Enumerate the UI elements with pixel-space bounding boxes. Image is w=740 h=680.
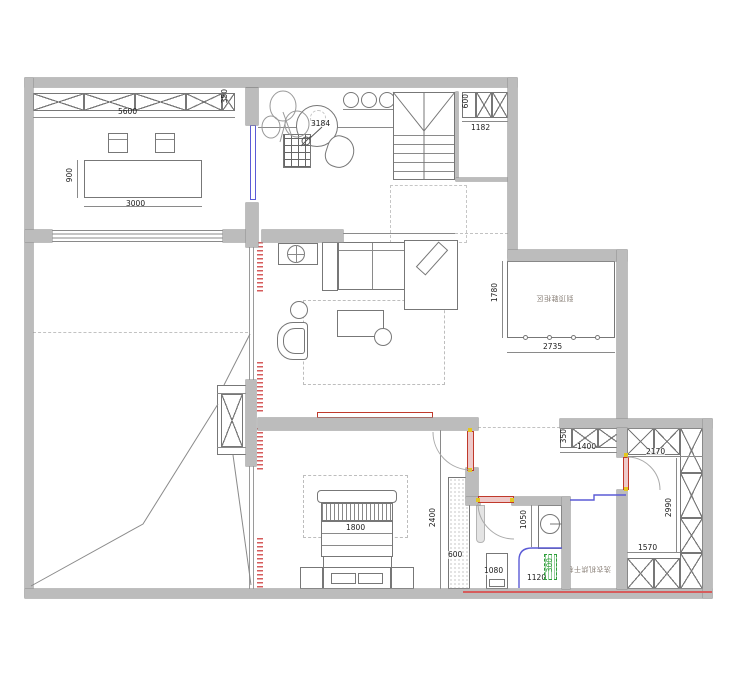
nightstand (300, 567, 323, 589)
wall (560, 419, 712, 428)
dim-line (627, 552, 680, 553)
bed-headboard (317, 490, 397, 503)
dining-chair (108, 133, 128, 153)
dim-line (77, 160, 78, 198)
cabinet-marker (595, 335, 600, 340)
closet-cabinet-cell (680, 553, 703, 589)
stair-shaft-wall (456, 92, 458, 180)
door-hinge (476, 498, 480, 502)
corridor-boundary-dashed-line (478, 427, 560, 428)
bed-line (322, 533, 392, 534)
stair-tread (394, 153, 454, 154)
dim-closet-bottom-length: 1570 (638, 544, 657, 552)
attic-boundary-dashed-line (33, 332, 248, 333)
shelf-grid (283, 134, 311, 168)
new-wall-hatch (257, 538, 263, 589)
sofa-armrest (322, 242, 338, 291)
dim-closet-side-length: 2990 (665, 498, 673, 517)
door-hinge (468, 428, 472, 432)
tall-cabinet-cell (186, 93, 222, 111)
dim-line (560, 452, 625, 453)
plant-cross-line (296, 245, 297, 263)
wall (25, 78, 517, 87)
bedroom-door-leaf (467, 431, 474, 471)
bar-stool (343, 92, 359, 108)
dim-shaft-cabinet-depth: 600 (462, 94, 470, 108)
wall (246, 203, 258, 247)
chair-back-line (109, 139, 127, 140)
dim-top-cabinet-depth: 350 (221, 89, 229, 103)
closet-cabinet-cell (680, 518, 703, 553)
wall (262, 230, 343, 242)
attic-slope-line (31, 404, 218, 586)
stair-tread (394, 162, 454, 163)
stair-landing-dashed-zone (390, 185, 467, 243)
bed-line (322, 545, 392, 546)
wall (562, 497, 570, 589)
wall (508, 78, 517, 258)
dim-top-cabinet-length: 5600 (118, 108, 137, 116)
dim-wardrobe-width: 600 (448, 551, 462, 559)
new-wall-hatch (257, 428, 263, 472)
dining-table (84, 160, 202, 198)
flue-box-line (217, 447, 247, 448)
wall (258, 418, 478, 430)
dim-toilet-zone-width: 1080 (484, 567, 503, 575)
coffee-side-table (374, 328, 392, 346)
bed-pillow-band (321, 503, 393, 521)
dim-line (627, 456, 703, 457)
door-hinge (510, 498, 514, 502)
dim-dining-table-depth: 900 (66, 168, 74, 182)
new-wall-hatch (257, 362, 263, 412)
dim-closet-strip-depth: 350 (560, 429, 568, 443)
nightstand (391, 567, 414, 589)
bench-cushion (331, 573, 356, 584)
living-zone-line (343, 233, 455, 234)
stairs (393, 92, 455, 180)
wall (703, 419, 712, 598)
window (52, 230, 223, 242)
cabinet-marker (547, 335, 552, 340)
door-hinge (468, 468, 472, 472)
floor-plan: 5600 350 900 3000 3184 600 1182 到顶鞋柜区 17… (0, 0, 740, 680)
tall-cabinet-cell (33, 93, 84, 111)
radiator (250, 125, 256, 200)
cabinet-marker (523, 335, 528, 340)
closet-cabinet-cell (680, 428, 703, 473)
dim-drain-offset: 300 (546, 558, 554, 572)
reading-lamp-table (290, 301, 308, 319)
toilet-cistern (489, 579, 505, 587)
closet-cabinet-cell (654, 558, 680, 589)
dim-entry-zone-width: 2735 (543, 343, 562, 351)
attic-slope-line (224, 334, 250, 385)
bar-counter-line (343, 109, 393, 110)
entry-cabinet-note: 到顶鞋柜区 (536, 293, 574, 303)
wall (25, 78, 33, 597)
dim-bed-width: 1800 (346, 524, 365, 532)
dim-closet-strip-length: 1400 (577, 443, 596, 451)
wall (508, 250, 627, 261)
stair-tread (394, 144, 454, 145)
open-door-panel (476, 505, 485, 543)
tall-cabinet-cell (135, 93, 186, 111)
wall (617, 250, 627, 428)
door-hinge (624, 487, 628, 491)
closet-door-leaf (623, 457, 629, 490)
dim-basin-counter-length: 1050 (520, 510, 528, 529)
armchair-seat (283, 328, 305, 354)
dining-chair (155, 133, 175, 153)
flue-box-xcell (221, 394, 243, 447)
shaft-cabinet-cell (492, 92, 508, 118)
dim-closet-top-length: 2170 (646, 448, 665, 456)
dim-line (33, 117, 235, 118)
chair-back-line (156, 139, 174, 140)
bench-cushion (358, 573, 383, 584)
red-pipe-line (463, 591, 712, 593)
wall (246, 88, 258, 125)
laundry-note: 洗衣机烘干机 (566, 564, 611, 574)
dim-line (676, 458, 677, 553)
wall (246, 380, 256, 466)
door-hinge (624, 453, 628, 457)
new-wall-hatch (257, 242, 263, 292)
dim-dining-table-length: 3000 (126, 200, 145, 208)
wall (25, 230, 52, 242)
dim-line (462, 121, 508, 122)
dim-shaft-width: 1182 (471, 124, 490, 132)
wall (617, 490, 627, 589)
wall (466, 468, 478, 498)
door-arc (433, 432, 471, 470)
dim-line (507, 352, 615, 353)
shaft-cabinet-cell (476, 92, 492, 118)
basin-bowl (540, 514, 560, 534)
bar-stool (361, 92, 377, 108)
closet-cabinet-cell (627, 558, 654, 589)
dim-line (531, 505, 532, 547)
door-arc (627, 457, 660, 490)
dim-line (440, 430, 441, 589)
sofa-cushion-divider (372, 243, 373, 289)
closet-cabinet-cell (680, 473, 703, 518)
dim-round-table: 3184 (311, 120, 330, 128)
bathroom-door-leaf (478, 496, 514, 503)
stair-tread (394, 135, 454, 136)
cabinet-marker (571, 335, 576, 340)
stair-tread (394, 171, 454, 172)
stair-shaft-wall (456, 178, 508, 181)
dim-entry-zone-depth: 1780 (491, 283, 499, 302)
dim-bedroom-depth: 2400 (429, 508, 437, 527)
dim-line (502, 261, 503, 338)
